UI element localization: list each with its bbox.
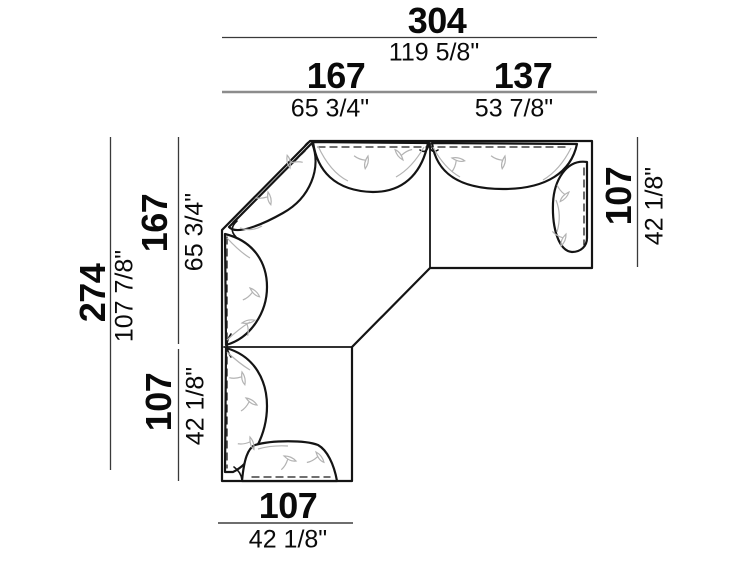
dim-top-left-cm: 167 (307, 58, 366, 94)
dim-top-right-in: 53 7/8" (475, 97, 553, 122)
dimension-drawing-canvas: 304 119 5/8" 167 137 65 3/4" 53 7/8" 274… (0, 0, 749, 562)
dim-right-cm: 107 (601, 167, 637, 226)
dim-left-total-cm: 274 (75, 264, 111, 323)
dim-left-upper-cm: 167 (137, 194, 173, 253)
dim-bottom-in: 42 1/8" (249, 528, 327, 553)
dim-left-lower-in: 42 1/8" (184, 367, 209, 445)
dim-left-total-in: 107 7/8" (113, 250, 138, 342)
dim-top-right-cm: 137 (494, 58, 553, 94)
dim-bottom-cm: 107 (259, 488, 318, 524)
dim-left-lower-cm: 107 (141, 373, 177, 432)
dim-right-in: 42 1/8" (643, 167, 668, 245)
armrest-bottom (242, 441, 337, 481)
dim-top-left-in: 65 3/4" (291, 97, 369, 122)
dim-top-total-cm: 304 (408, 3, 467, 39)
dim-left-upper-in: 65 3/4" (183, 193, 208, 271)
dim-top-total-in: 119 5/8" (389, 41, 479, 66)
